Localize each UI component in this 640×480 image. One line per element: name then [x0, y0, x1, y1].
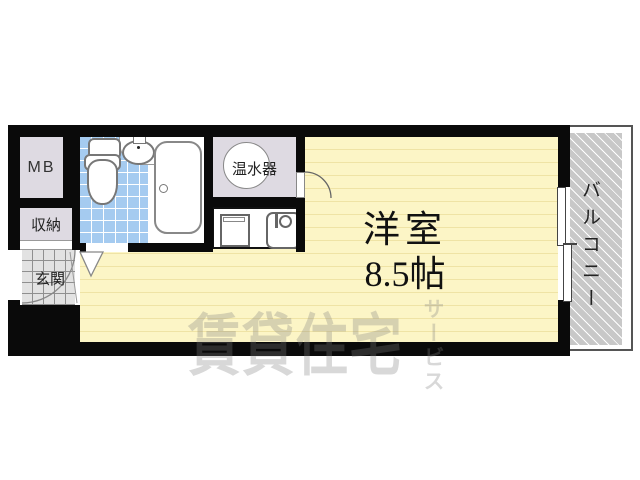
wall-bathroom-heater-divider [204, 137, 213, 252]
wall-right-upper [558, 125, 570, 187]
sliding-window-pane-left [557, 187, 566, 246]
meter-box-label: MB [28, 159, 56, 177]
balcony-label: バルコニー [581, 180, 603, 330]
wall-storage-right [72, 208, 80, 250]
bathroom-door-opening [86, 243, 128, 252]
storage-label: 収納 [31, 214, 61, 235]
washbasin-drain-icon [137, 146, 140, 149]
kitchen-cabinet-handle-icon [223, 217, 245, 222]
wall-left-upper [8, 125, 20, 250]
wall-heater-kitchen-divider [213, 197, 296, 207]
floor-plan: MB 収納 玄関 温水器 洋室 8.5帖 バルコニー 賃貸住宅 サービス [0, 0, 640, 480]
wall-door-column-top [296, 137, 305, 172]
bathtub-drain-icon [159, 184, 168, 193]
kitchen-faucet-pipe-icon [275, 212, 278, 228]
watermark-brand-main: 賃貸住宅 [188, 310, 403, 384]
kitchen-faucet-knob-icon [279, 215, 292, 228]
sliding-window-rail-tick [563, 243, 577, 245]
storage-door [20, 240, 72, 250]
room-door-leaf [296, 172, 305, 198]
water-heater-label: 温水器 [213, 158, 296, 179]
main-room-size: 8.5帖 [330, 245, 480, 297]
watermark-brand-sub: サービス [417, 298, 447, 408]
wall-meterbox-storage-divider [8, 198, 80, 208]
wall-right-lower [558, 300, 570, 356]
wall-door-column-bottom [296, 198, 305, 252]
storage-closet: 収納 [20, 208, 72, 240]
entrance-step-strip [75, 250, 80, 305]
entrance-label: 玄関 [27, 268, 73, 289]
sliding-window-pane-right [563, 244, 572, 302]
washbasin-faucet-icon [133, 136, 146, 144]
meter-box: MB [20, 137, 63, 198]
wall-top [8, 125, 570, 137]
toilet-bowl-icon [87, 159, 118, 205]
